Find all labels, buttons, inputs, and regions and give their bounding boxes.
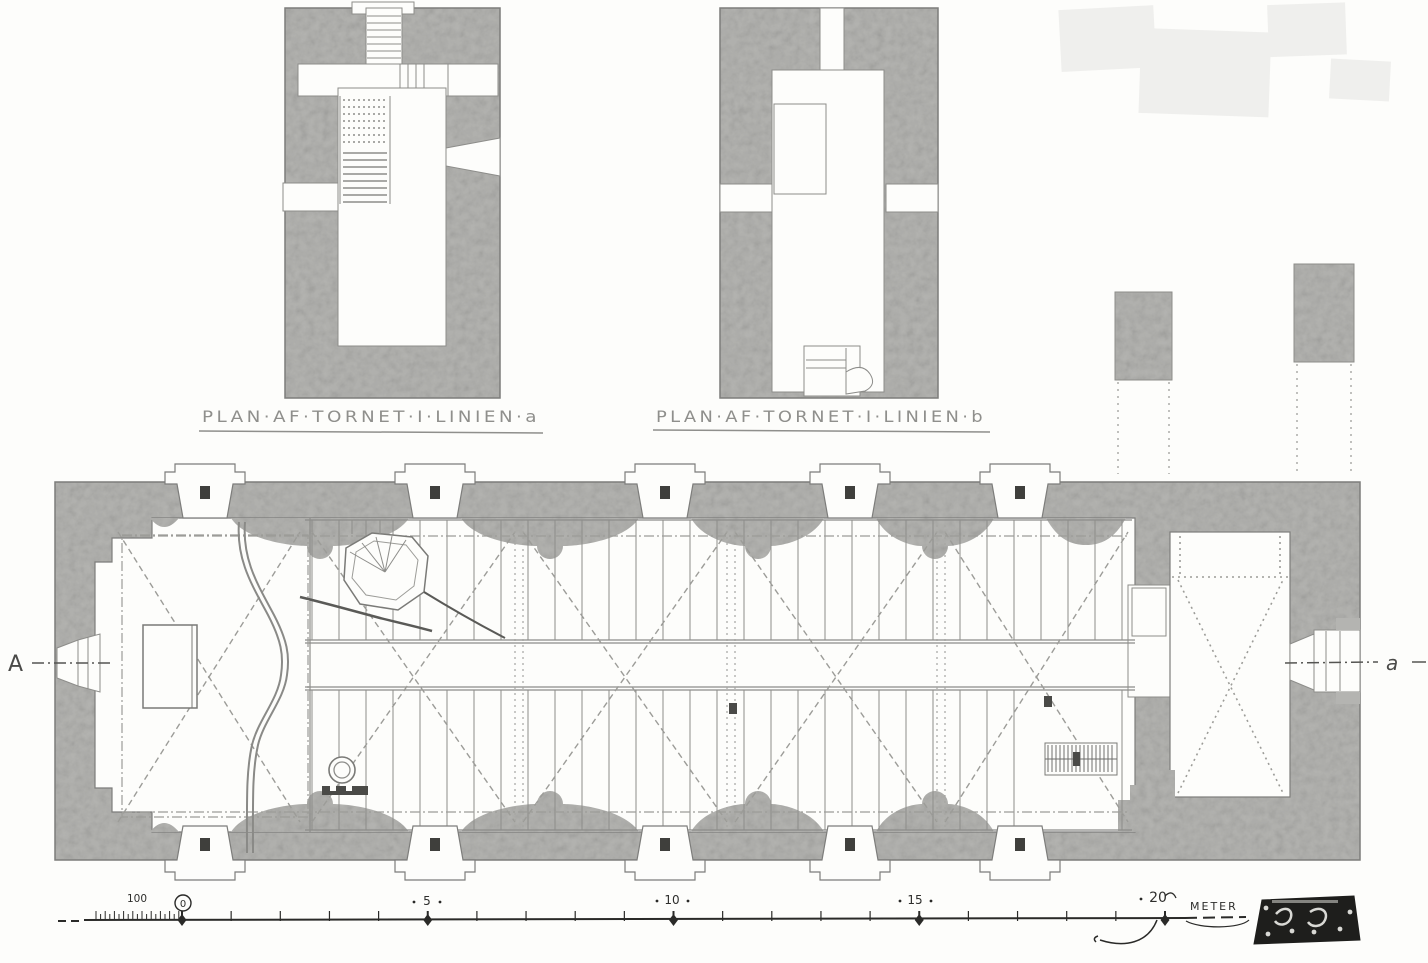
- scale-label-dots: [413, 898, 1143, 904]
- tower-b-interior: [772, 70, 884, 392]
- scale-tick-20: 20: [1149, 890, 1167, 906]
- main-plan-figure: [55, 464, 1360, 880]
- tower-plan-b-figure: [720, 8, 938, 398]
- scale-bar: 100 0 5 10 15 20 METER: [58, 890, 1249, 944]
- chancel-interior: [1170, 532, 1290, 797]
- scale-subdivision-label: 100: [127, 893, 147, 905]
- tower-b-wall-opening-left: [720, 184, 772, 212]
- east-stair: [1045, 743, 1117, 775]
- scale-tick-5: 5: [423, 894, 431, 908]
- tower-b-top-slot: [820, 8, 844, 72]
- scale-tick-0: 0: [180, 899, 186, 910]
- tower-plan-a-caption: PLAN·AF·TORNET·I·LINIEN·a: [202, 407, 540, 426]
- tower-plan-b-caption: PLAN·AF·TORNET·I·LINIEN·b: [656, 407, 986, 426]
- tower-hatch-opening: [143, 625, 197, 708]
- drawing-sheet: PLAN·AF·TORNET·I·LINIEN·a PLAN·AF·TORNET…: [0, 0, 1428, 963]
- tower-plan-a-figure: [283, 2, 500, 398]
- tower-plan-a-caption-underline: [199, 431, 543, 433]
- scale-tick-10: 10: [664, 893, 679, 907]
- monogram-stamp: [1254, 896, 1360, 944]
- detached-pier-plans: [1115, 264, 1354, 474]
- scale-tick-15: 15: [907, 893, 922, 907]
- section-marker-right: a: [1386, 651, 1398, 675]
- tower-b-wall-opening-right: [886, 184, 938, 212]
- ghost-print-marks: [1058, 2, 1391, 117]
- architectural-drawing-svg: PLAN·AF·TORNET·I·LINIEN·a PLAN·AF·TORNET…: [0, 0, 1428, 963]
- section-marker-left: A: [8, 652, 23, 677]
- tower-plan-b-caption-underline: [653, 430, 990, 432]
- scale-cm-ticks: [96, 911, 179, 920]
- chancel-passage-box: [1132, 588, 1166, 636]
- tower-a-interior: [338, 88, 446, 346]
- scale-unit-label: METER: [1190, 900, 1238, 913]
- tower-a-wall-opening: [283, 183, 338, 211]
